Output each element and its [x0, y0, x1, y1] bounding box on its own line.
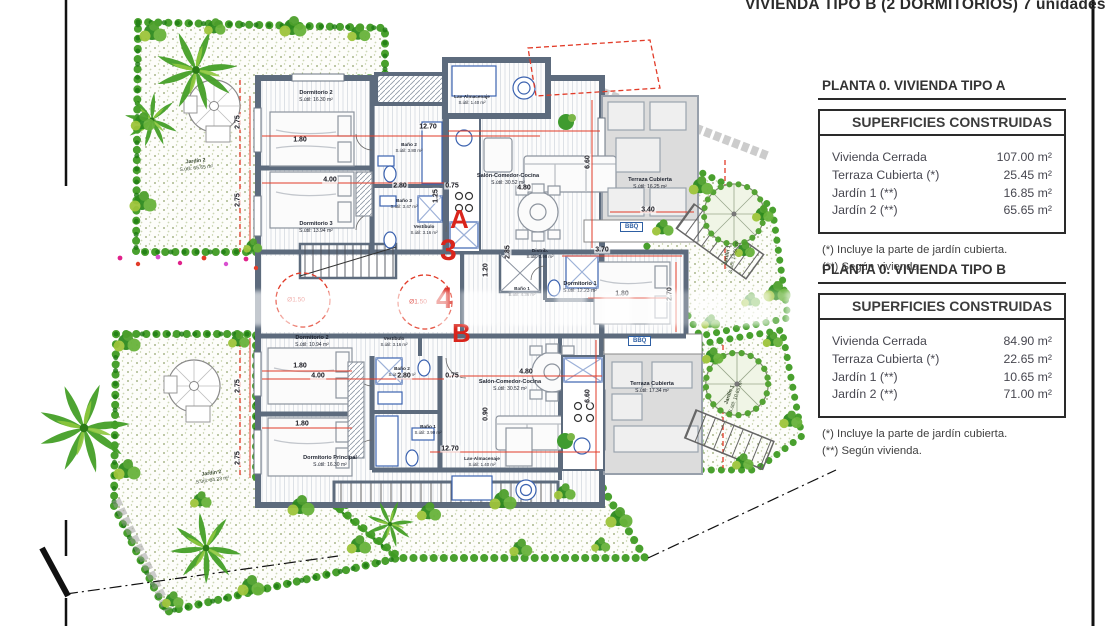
room-label-b-bano1: Baño 1S.útil: 3.90 m² [414, 424, 441, 436]
flowers [118, 255, 259, 271]
room-label-a-lav: Lav-AlmacenajeS.útil: 1.40 m² [454, 94, 490, 106]
dim: 1.80 [292, 137, 308, 144]
panel-a-table: SUPERFICIES CONSTRUIDAS Vivienda Cerrada… [818, 109, 1066, 234]
watermark [142, 291, 898, 326]
room-label-b-salon: Salón-Comedor-CocinaS.útil: 30.52 m² [479, 379, 541, 393]
panel-vivienda-tipo-b: PLANTA 0. VIVIENDA TIPO B SUPERFICIES CO… [818, 262, 1066, 460]
room-label-a-dormitorio2: Dormitorio 2S.útil: 16.30 m² [299, 90, 333, 104]
sheet-title: VIVIENDA TIPO B (2 DORMITORIOS) 7 unidad… [745, 0, 1106, 14]
central-staircase [300, 244, 396, 278]
dim: 12.70 [418, 124, 438, 131]
panel-a-title: PLANTA 0. VIVIENDA TIPO A [818, 78, 1066, 100]
dim: 1.20 [483, 262, 490, 278]
dim: 3.70 [594, 247, 610, 254]
room-label-a-distrib: Distrib.S.útil: 0.98 m² [526, 248, 553, 260]
room-label-a-dormitorio3: Dormitorio 3S.útil: 13.94 m² [299, 221, 333, 235]
table-row: Jardín 1 (**)16.85 m² [832, 185, 1052, 203]
dim: 12.70 [440, 446, 460, 453]
dim: 0.90 [483, 406, 490, 422]
table-row: Terraza Cubierta (*)25.45 m² [832, 167, 1052, 185]
dim: 4.80 [516, 185, 532, 192]
dim: 0.75 [444, 373, 460, 380]
dim: 4.00 [322, 177, 338, 184]
table-row: Vivienda Cerrada107.00 m² [832, 149, 1052, 167]
room-label-a-bano2: Baño 2S.útil: 3.80 m² [395, 142, 422, 154]
panel-a-table-title: SUPERFICIES CONSTRUIDAS [820, 111, 1064, 136]
room-label-a-bano3: Baño 3S.útil: 3.47 m² [390, 198, 417, 210]
dim: 6.60 [585, 388, 592, 404]
dim: 2.75 [235, 378, 242, 394]
dim: 3.40 [640, 207, 656, 214]
exterior-stair-top [376, 74, 444, 104]
unit-number-3: 3 [440, 234, 457, 268]
panel-b-notes: (*) Incluye la parte de jardín cubierta.… [818, 426, 1066, 460]
dim: 0.75 [444, 183, 460, 190]
dim: 1.80 [292, 363, 308, 370]
dim: 1.80 [294, 421, 310, 428]
room-label-a-terraza: Terraza CubiertaS.útil: 16.25 m² [628, 177, 672, 191]
dim: 2.80 [396, 373, 412, 380]
panel-b-table-title: SUPERFICIES CONSTRUIDAS [820, 295, 1064, 320]
table-row: Jardín 2 (**)71.00 m² [832, 386, 1052, 404]
dim: 2.75 [235, 450, 242, 466]
room-label-b-terraza: Terraza CubiertaS.útil: 17.34 m² [630, 381, 674, 395]
unit-letter-a: A [450, 204, 469, 235]
panel-b-title: PLANTA 0. VIVIENDA TIPO B [818, 262, 1066, 284]
room-label-b-lav: Lav-AlmacenajeS.útil: 1.40 m² [464, 456, 500, 468]
dim: 6.60 [585, 154, 592, 170]
panel-b-table: SUPERFICIES CONSTRUIDAS Vivienda Cerrada… [818, 293, 1066, 418]
room-label-a-vestibulo: VestíbuloS.útil: 3.16 m² [410, 224, 437, 236]
table-row: Terraza Cubierta (*)22.65 m² [832, 351, 1052, 369]
panel-vivienda-tipo-a: PLANTA 0. VIVIENDA TIPO A SUPERFICIES CO… [818, 78, 1066, 276]
dim: 4.00 [310, 373, 326, 380]
bbq-label-a: BBQ [620, 222, 643, 232]
table-row: Jardín 1 (**)10.65 m² [832, 369, 1052, 387]
floor-plan-sheet: VIVIENDA TIPO B (2 DORMITORIOS) 7 unidad… [0, 0, 1110, 626]
dim: 2.80 [392, 183, 408, 190]
dim: 1.25 [433, 188, 440, 204]
table-row: Jardín 2 (**)65.65 m² [832, 202, 1052, 220]
bbq-label-b: BBQ [628, 336, 651, 346]
dim: 2.85 [505, 244, 512, 260]
table-row: Vivienda Cerrada84.90 m² [832, 333, 1052, 351]
dim: 2.75 [235, 114, 242, 130]
room-label-b-dormitorio-principal: Dormitorio PrincipalS.útil: 16.30 m² [303, 455, 357, 469]
room-label-b-dormitorio2: Dormitorio 2S.útil: 10.94 m² [295, 335, 329, 349]
room-label-b-vestibulo: VestíbuloS.útil: 3.16 m² [380, 336, 407, 348]
dim: 2.75 [235, 192, 242, 208]
dim: 4.80 [518, 369, 534, 376]
